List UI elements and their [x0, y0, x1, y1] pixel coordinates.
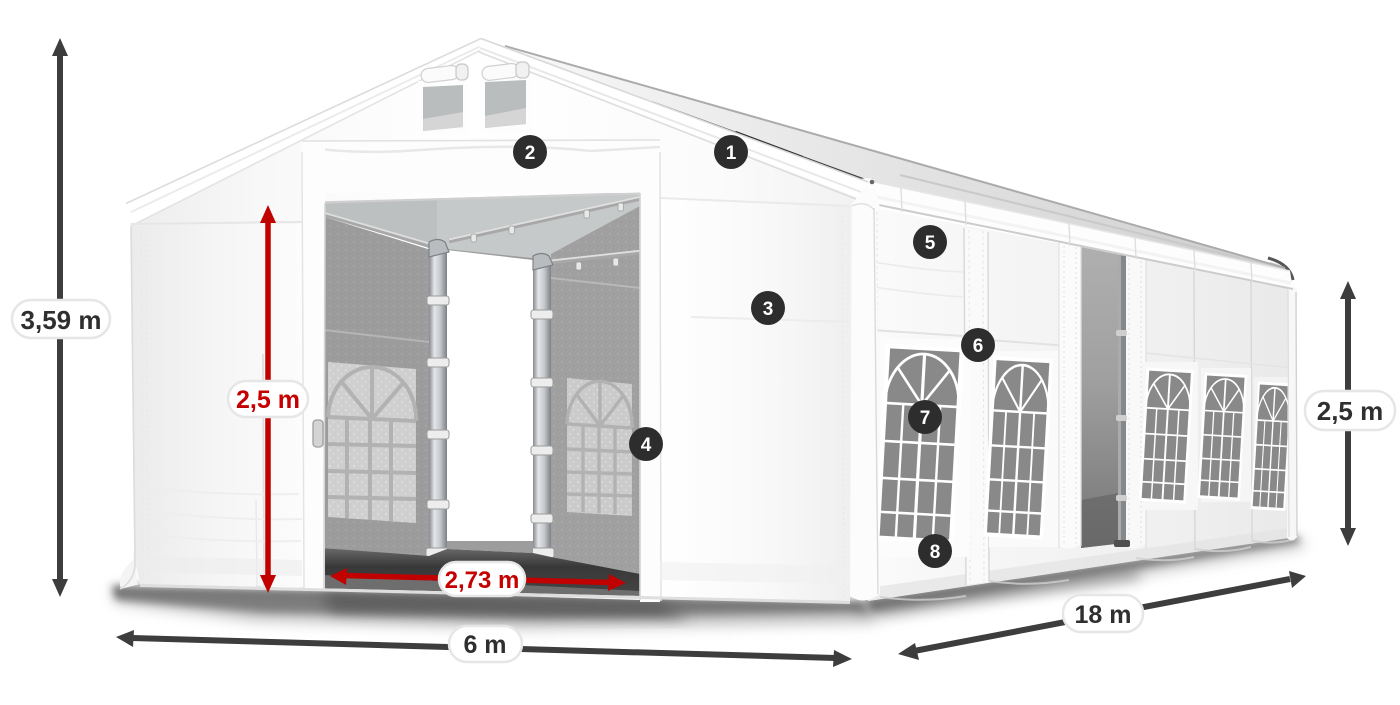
svg-text:2,5 m: 2,5 m — [1317, 396, 1384, 426]
svg-text:8: 8 — [930, 542, 941, 563]
svg-text:5: 5 — [925, 233, 936, 254]
svg-text:7: 7 — [920, 408, 931, 429]
svg-text:3,59 m: 3,59 m — [21, 305, 102, 335]
svg-text:18 m: 18 m — [1075, 601, 1132, 629]
svg-text:2,73 m: 2,73 m — [445, 567, 520, 594]
svg-text:3: 3 — [763, 299, 774, 320]
svg-text:2,5 m: 2,5 m — [236, 386, 300, 414]
svg-text:1: 1 — [726, 143, 737, 164]
svg-text:2: 2 — [525, 143, 536, 164]
svg-text:6 m: 6 m — [463, 631, 506, 659]
svg-text:4: 4 — [641, 435, 652, 456]
svg-text:6: 6 — [973, 336, 984, 357]
